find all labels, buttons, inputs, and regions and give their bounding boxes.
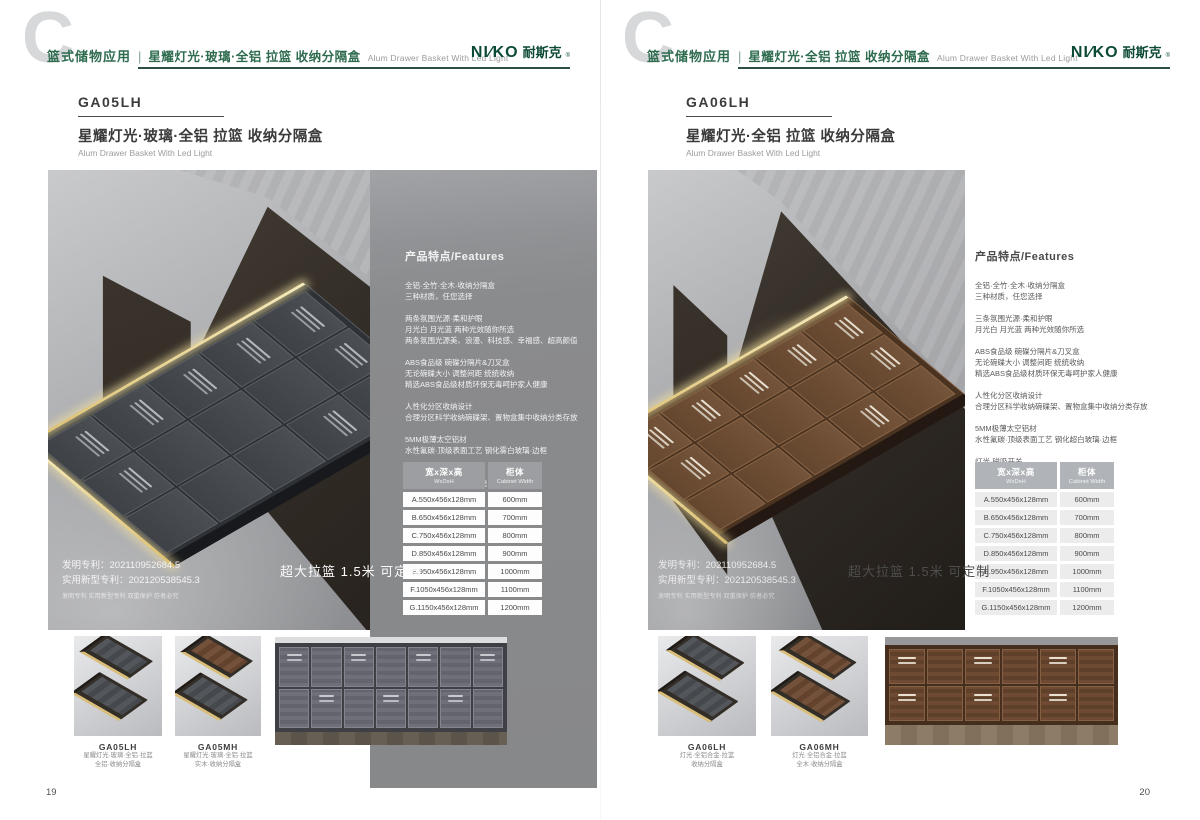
header-rule (738, 67, 1170, 69)
product-title: 星耀灯光·玻璃·全铝 拉篮 收纳分隔盒 (78, 125, 323, 146)
spec-row: F.1050x456x128mm1100mm (975, 582, 1114, 597)
catalog-spread: C 篮式储物应用 | 星耀灯光·玻璃·全铝 拉篮 收纳分隔盒 Alum Draw… (0, 0, 1200, 820)
spec-cell-size: F.1050x456x128mm (403, 582, 485, 597)
brand-logo: NI∕KO 耐斯克 ® (1071, 42, 1170, 62)
feature-group: 两条氛围光源·柔和护眼 月光白 月光蓝 两种光效随你所选 两条氛围光源美、浪漫、… (405, 313, 590, 346)
thumbnail-image (74, 636, 162, 736)
patent-block: 发明专利：202110952684.5 实用新型专利：202120538545.… (62, 558, 200, 604)
feature-group: 5MM极薄太空铝材 水性氟碳·顶级表面工艺 钢化雾白玻璃·边框 (405, 434, 590, 456)
thumbnail-desc: 灯光·全铝合金·拉篮 (658, 752, 756, 761)
feature-group: 人性化分区收纳设计 合理分区科学收纳碗碟架、置物盒集中收纳分类存放 (975, 390, 1160, 412)
spec-row: B.650x456x128mm700mm (403, 510, 542, 525)
spec-row: A.550x456x128mm600mm (975, 492, 1114, 507)
spec-cell-cabinet: 1100mm (1060, 582, 1114, 597)
spec-table: 宽x深x高 WxDxH 柜体 Cabinet Width A.550x456x1… (403, 462, 542, 615)
spec-header-cabinet-en: Cabinet Width (497, 479, 533, 485)
spec-cell-cabinet: 1000mm (1060, 564, 1114, 579)
wide-photo-counter-edge (885, 637, 1118, 645)
mini-drawer-icon (175, 672, 247, 721)
product-block: GA05LH 星耀灯光·玻璃·全铝 拉篮 收纳分隔盒 Alum Drawer B… (78, 94, 323, 158)
mini-drawer-icon (180, 636, 253, 679)
wide-photo-floor (275, 732, 507, 745)
spec-cell-cabinet: 800mm (488, 528, 542, 543)
feature-line: 精选ABS食品级材质环保无毒呵护家人健康 (405, 379, 590, 390)
feature-line: 月光白 月光蓝 两种光效随你所选 (975, 324, 1160, 335)
spec-cell-cabinet: 600mm (1060, 492, 1114, 507)
feature-line: ABS食品级 碗碟分隔片&刀叉盒 (975, 346, 1160, 357)
brand-logo-cn: 耐斯克 (1123, 42, 1162, 61)
brand-logo-reg: ® (566, 53, 570, 59)
spec-cell-cabinet: 1200mm (1060, 600, 1114, 615)
patent-line-3: 发明专利 实用新型专利 双重保护 仿者必究 (658, 589, 796, 604)
feature-line: 合理分区科学收纳碗碟架、置物盒集中收纳分类存放 (975, 401, 1160, 412)
patent-line-3: 发明专利 实用新型专利 双重保护 仿者必究 (62, 589, 200, 604)
product-title-en: Alum Drawer Basket With Led Light (686, 148, 895, 158)
spec-header-size-en: WxDxH (434, 479, 454, 485)
spec-row: G.1150x456x128mm1200mm (975, 600, 1114, 615)
feature-group: ABS食品级 碗碟分隔片&刀叉盒 无论碗碟大小 调整间距 统统收纳 精选ABS食… (975, 346, 1160, 379)
header-divider: | (138, 49, 141, 64)
feature-line: 5MM极薄太空铝材 (975, 423, 1160, 434)
spec-cell-cabinet: 700mm (488, 510, 542, 525)
feature-line: 无论碗碟大小 调整间距 统统收纳 (405, 368, 590, 379)
spec-cell-cabinet: 600mm (488, 492, 542, 507)
spec-cell-size: D.850x456x128mm (403, 546, 485, 561)
wide-photo-floor (885, 725, 1118, 745)
spec-cell-cabinet: 1000mm (488, 564, 542, 579)
patent-block: 发明专利：202110952684.5 实用新型专利：202120538545.… (658, 558, 796, 604)
spec-cell-size: G.1150x456x128mm (975, 600, 1057, 615)
feature-line: 全铝·全竹·全木·收纳分隔盒 (405, 280, 590, 291)
spec-cell-cabinet: 800mm (1060, 528, 1114, 543)
spec-header-cabinet: 柜体 Cabinet Width (488, 462, 542, 489)
spec-cell-size: D.850x456x128mm (975, 546, 1057, 561)
spec-cell-cabinet: 1200mm (488, 600, 542, 615)
thumbnail-code: GA06LH (658, 742, 756, 752)
spec-header-cabinet-cn: 柜体 (1078, 466, 1096, 478)
brand-logo-en: NI∕KO (1071, 44, 1119, 62)
feature-line: 精选ABS食品级材质环保无毒呵护家人健康 (975, 368, 1160, 379)
product-title-en: Alum Drawer Basket With Led Light (78, 148, 323, 158)
mini-drawer-icon (778, 636, 857, 681)
page-gutter (600, 0, 601, 820)
feature-line: 全铝·全竹·全木·收纳分隔盒 (975, 280, 1160, 291)
spec-cell-size: A.550x456x128mm (975, 492, 1057, 507)
spec-cell-size: C.750x456x128mm (975, 528, 1057, 543)
spec-header-size-cn: 宽x深x高 (425, 466, 462, 478)
spec-row: D.850x456x128mm900mm (403, 546, 542, 561)
spec-cell-cabinet: 900mm (1060, 546, 1114, 561)
mini-drawer-icon (658, 670, 738, 722)
spec-table-header: 宽x深x高 WxDxH 柜体 Cabinet Width (975, 462, 1114, 489)
feature-line: 三条氛围光源·柔和护眼 (975, 313, 1160, 324)
product-block: GA06LH 星耀灯光·全铝 拉篮 收纳分隔盒 Alum Drawer Bask… (686, 94, 895, 158)
feature-group: 全铝·全竹·全木·收纳分隔盒 三种材质，任您选择 (975, 280, 1160, 302)
patent-line-1: 发明专利：202110952684.5 (658, 558, 796, 573)
feature-line: 月光白 月光蓝 两种光效随你所选 (405, 324, 590, 335)
spec-header-size: 宽x深x高 WxDxH (403, 462, 485, 489)
thumbnail-image (771, 636, 868, 736)
spec-row: B.650x456x128mm700mm (975, 510, 1114, 525)
header: 篮式储物应用 | 星耀灯光·全铝 拉篮 收纳分隔盒 Alum Drawer Ba… (647, 46, 1078, 65)
spec-cell-cabinet: 700mm (1060, 510, 1114, 525)
feature-line: ABS食品级 碗碟分隔片&刀叉盒 (405, 357, 590, 368)
thumbnail: GA06MH 灯光·全铝合金·拉篮 全木·收纳分隔盒 (771, 636, 868, 769)
feature-line: 三种材质，任您选择 (975, 291, 1160, 302)
custom-size-note: 超大拉篮 1.5米 可定制 (280, 561, 422, 580)
header-divider: | (738, 49, 741, 64)
spec-row: E.950x456x128mm1000mm (975, 564, 1114, 579)
spec-header-size-en: WxDxH (1006, 479, 1026, 485)
spec-header-cabinet: 柜体 Cabinet Width (1060, 462, 1114, 489)
mini-drawer-icon (79, 636, 153, 680)
spec-cell-size: A.550x456x128mm (403, 492, 485, 507)
brand-logo-en: NI∕KO (471, 44, 519, 62)
feature-line: 人性化分区收纳设计 (975, 390, 1160, 401)
feature-line: 水性氟碳·顶级表面工艺 钢化超白玻璃·边框 (975, 434, 1160, 445)
patent-line-2: 实用新型专利：202120538545.3 (658, 573, 796, 588)
custom-size-note: 超大拉篮 1.5米 可定制 (848, 561, 990, 580)
thumbnail-desc: 灯光·全铝合金·拉篮 (771, 752, 868, 761)
thumbnail-desc: 全木·收纳分隔盒 (771, 761, 868, 770)
patent-line-2: 实用新型专利：202120538545.3 (62, 573, 200, 588)
thumbnail-desc: 星耀灯光·玻璃·全铝·拉篮 (175, 752, 261, 761)
feature-line: 5MM极薄太空铝材 (405, 434, 590, 445)
spec-row: G.1150x456x128mm1200mm (403, 600, 542, 615)
feature-line: 两条氛围光源美、浪漫、科技感、幸福感、超高颜值 (405, 335, 590, 346)
thumbnail-desc: 收纳分隔盒 (658, 761, 756, 770)
feature-group: 人性化分区收纳设计 合理分区科学收纳碗碟架、置物盒集中收纳分类存放 (405, 401, 590, 423)
thumbnail-code: GA05LH (74, 742, 162, 752)
page-right: C 篮式储物应用 | 星耀灯光·全铝 拉篮 收纳分隔盒 Alum Drawer … (600, 0, 1200, 820)
thumbnail: GA05MH 星耀灯光·玻璃·全铝·拉篮 实木·收纳分隔盒 (175, 636, 261, 769)
thumbnail-image (658, 636, 756, 736)
spec-header-size: 宽x深x高 WxDxH (975, 462, 1057, 489)
header-category: 篮式储物应用 (47, 46, 131, 65)
brand-logo: NI∕KO 耐斯克 ® (471, 42, 570, 62)
wide-photo-dividers (885, 645, 1118, 725)
thumbnail-desc: 实木·收纳分隔盒 (175, 761, 261, 770)
thumbnail: GA06LH 灯光·全铝合金·拉篮 收纳分隔盒 (658, 636, 756, 769)
spec-header-size-cn: 宽x深x高 (997, 466, 1034, 478)
page-number: 20 (1139, 787, 1150, 798)
header-subtitle: 星耀灯光·全铝 拉篮 收纳分隔盒 (748, 46, 930, 65)
header-subtitle: 星耀灯光·玻璃·全铝 拉篮 收纳分隔盒 (148, 46, 360, 65)
header: 篮式储物应用 | 星耀灯光·玻璃·全铝 拉篮 收纳分隔盒 Alum Drawer… (47, 46, 508, 65)
wide-photo-dividers (275, 643, 507, 732)
features-heading: 产品特点/Features (405, 248, 590, 264)
spec-row: F.1050x456x128mm1100mm (403, 582, 542, 597)
header-subtitle-en: Alum Drawer Basket With Led Light (937, 53, 1078, 63)
spec-row: A.550x456x128mm600mm (403, 492, 542, 507)
feature-group: 三条氛围光源·柔和护眼 月光白 月光蓝 两种光效随你所选 (975, 313, 1160, 335)
feature-group: 5MM极薄太空铝材 水性氟碳·顶级表面工艺 钢化超白玻璃·边框 (975, 423, 1160, 445)
feature-group: 全铝·全竹·全木·收纳分隔盒 三种材质，任您选择 (405, 280, 590, 302)
spec-cell-cabinet: 1100mm (488, 582, 542, 597)
header-rule (138, 67, 570, 69)
feature-line: 无论碗碟大小 调整间距 统统收纳 (975, 357, 1160, 368)
product-title: 星耀灯光·全铝 拉篮 收纳分隔盒 (686, 125, 895, 146)
feature-group: ABS食品级 碗碟分隔片&刀叉盒 无论碗碟大小 调整间距 统统收纳 精选ABS食… (405, 357, 590, 390)
spec-row: C.750x456x128mm800mm (975, 528, 1114, 543)
spec-cell-size: F.1050x456x128mm (975, 582, 1057, 597)
spec-cell-size: C.750x456x128mm (403, 528, 485, 543)
features-list: 产品特点/Features 全铝·全竹·全木·收纳分隔盒 三种材质，任您选择 三… (975, 248, 1160, 489)
spec-cell-size: B.650x456x128mm (403, 510, 485, 525)
page-left: C 篮式储物应用 | 星耀灯光·玻璃·全铝 拉篮 收纳分隔盒 Alum Draw… (0, 0, 600, 820)
page-number: 19 (46, 787, 57, 798)
feature-line: 三种材质，任您选择 (405, 291, 590, 302)
thumbnail-code: GA06MH (771, 742, 868, 752)
mini-drawer-icon (74, 672, 148, 721)
feature-line: 合理分区科学收纳碗碟架、置物盒集中收纳分类存放 (405, 412, 590, 423)
wide-drawer-photo (275, 637, 507, 745)
spec-table-header: 宽x深x高 WxDxH 柜体 Cabinet Width (403, 462, 542, 489)
header-category: 篮式储物应用 (647, 46, 731, 65)
mini-drawer-icon (771, 671, 850, 723)
product-code: GA06LH (686, 94, 832, 117)
features-heading: 产品特点/Features (975, 248, 1160, 264)
thumbnail-desc: 星耀灯光·玻璃·全铝·拉篮 (74, 752, 162, 761)
brand-logo-cn: 耐斯克 (523, 42, 562, 61)
spec-row: E.950x456x128mm1000mm (403, 564, 542, 579)
thumbnail-code: GA05MH (175, 742, 261, 752)
thumbnail-image (175, 636, 261, 736)
feature-line: 水性氟碳·顶级表面工艺 钢化雾白玻璃·边框 (405, 445, 590, 456)
thumbnail-desc: 全铝·收纳分隔盒 (74, 761, 162, 770)
brand-logo-reg: ® (1166, 53, 1170, 59)
spec-table: 宽x深x高 WxDxH 柜体 Cabinet Width A.550x456x1… (975, 462, 1114, 615)
spec-header-cabinet-cn: 柜体 (506, 466, 524, 478)
spec-cell-size: G.1150x456x128mm (403, 600, 485, 615)
patent-line-1: 发明专利：202110952684.5 (62, 558, 200, 573)
feature-line: 人性化分区收纳设计 (405, 401, 590, 412)
spec-header-cabinet-en: Cabinet Width (1069, 479, 1105, 485)
product-code: GA05LH (78, 94, 224, 117)
spec-cell-size: B.650x456x128mm (975, 510, 1057, 525)
feature-line: 两条氛围光源·柔和护眼 (405, 313, 590, 324)
spec-cell-cabinet: 900mm (488, 546, 542, 561)
thumbnail: GA05LH 星耀灯光·玻璃·全铝·拉篮 全铝·收纳分隔盒 (74, 636, 162, 769)
spec-row: D.850x456x128mm900mm (975, 546, 1114, 561)
spec-row: C.750x456x128mm800mm (403, 528, 542, 543)
wide-drawer-photo (885, 637, 1118, 745)
